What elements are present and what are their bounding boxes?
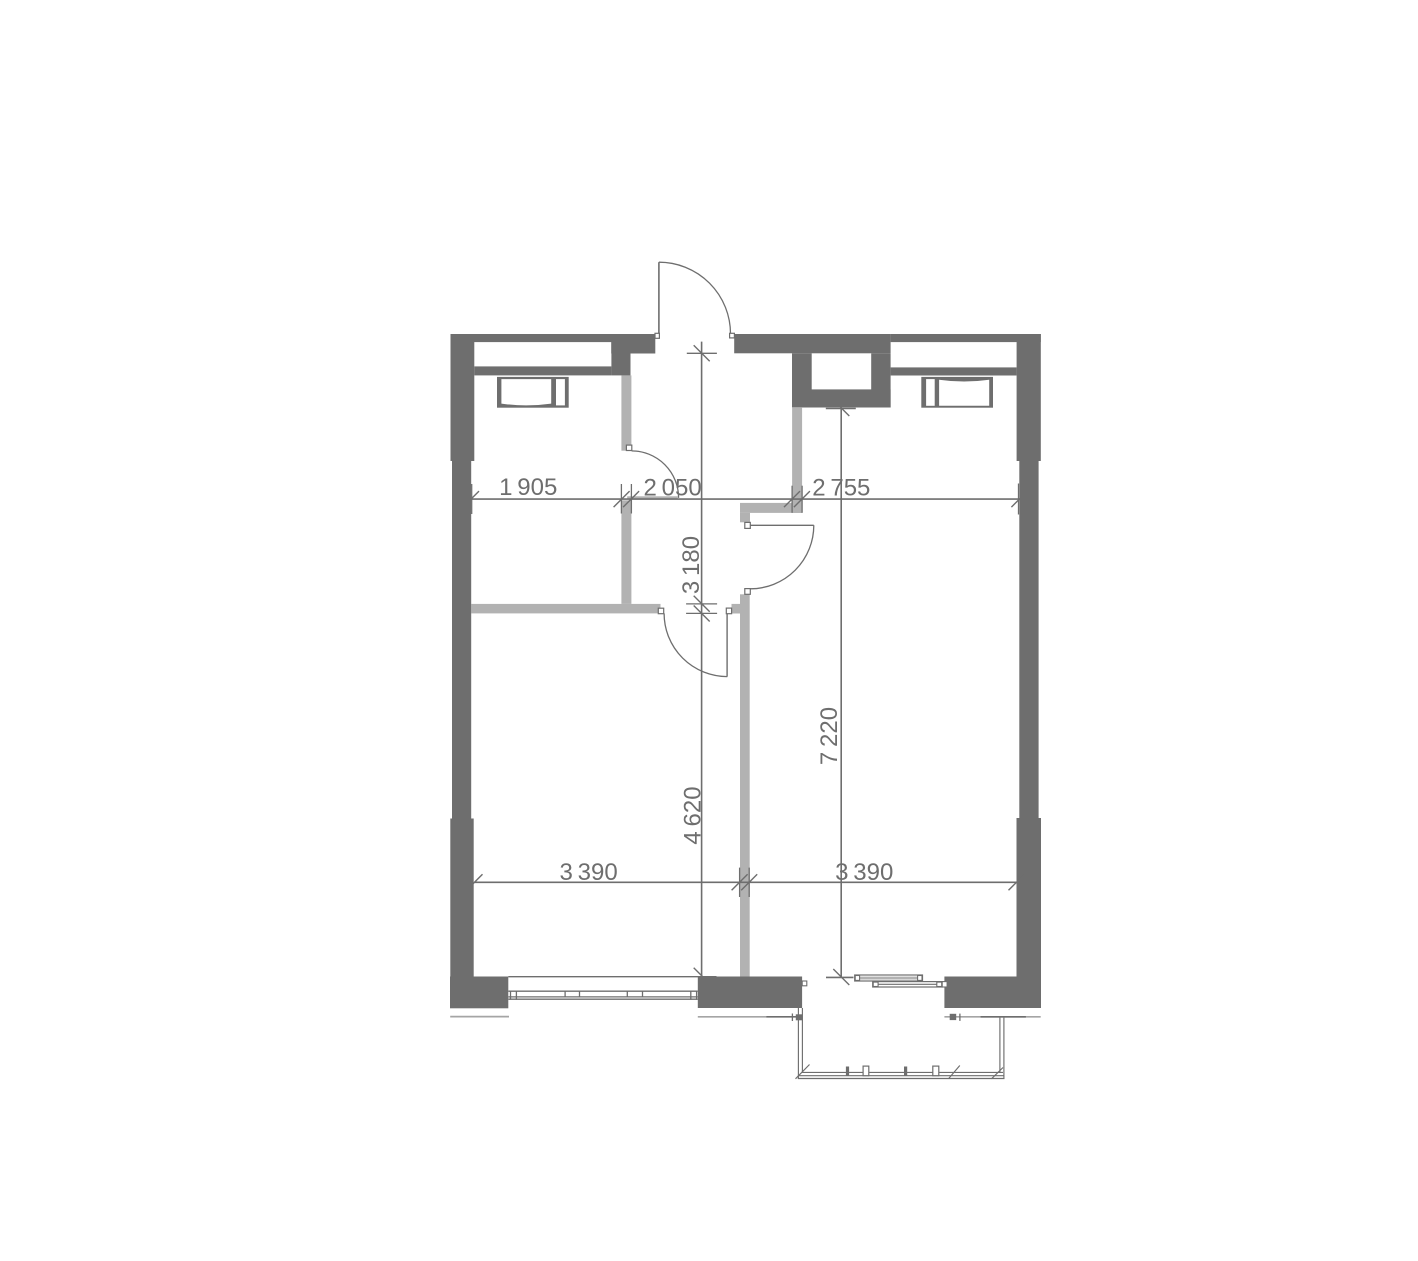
svg-text:7 220: 7 220 (816, 707, 843, 765)
svg-text:3 390: 3 390 (835, 859, 893, 886)
svg-text:2 050: 2 050 (643, 474, 701, 501)
svg-text:1 905: 1 905 (499, 474, 557, 501)
svg-text:3 390: 3 390 (559, 859, 617, 886)
svg-text:2 755: 2 755 (812, 474, 870, 501)
svg-text:3 180: 3 180 (678, 536, 705, 594)
svg-text:4 620: 4 620 (679, 786, 706, 844)
